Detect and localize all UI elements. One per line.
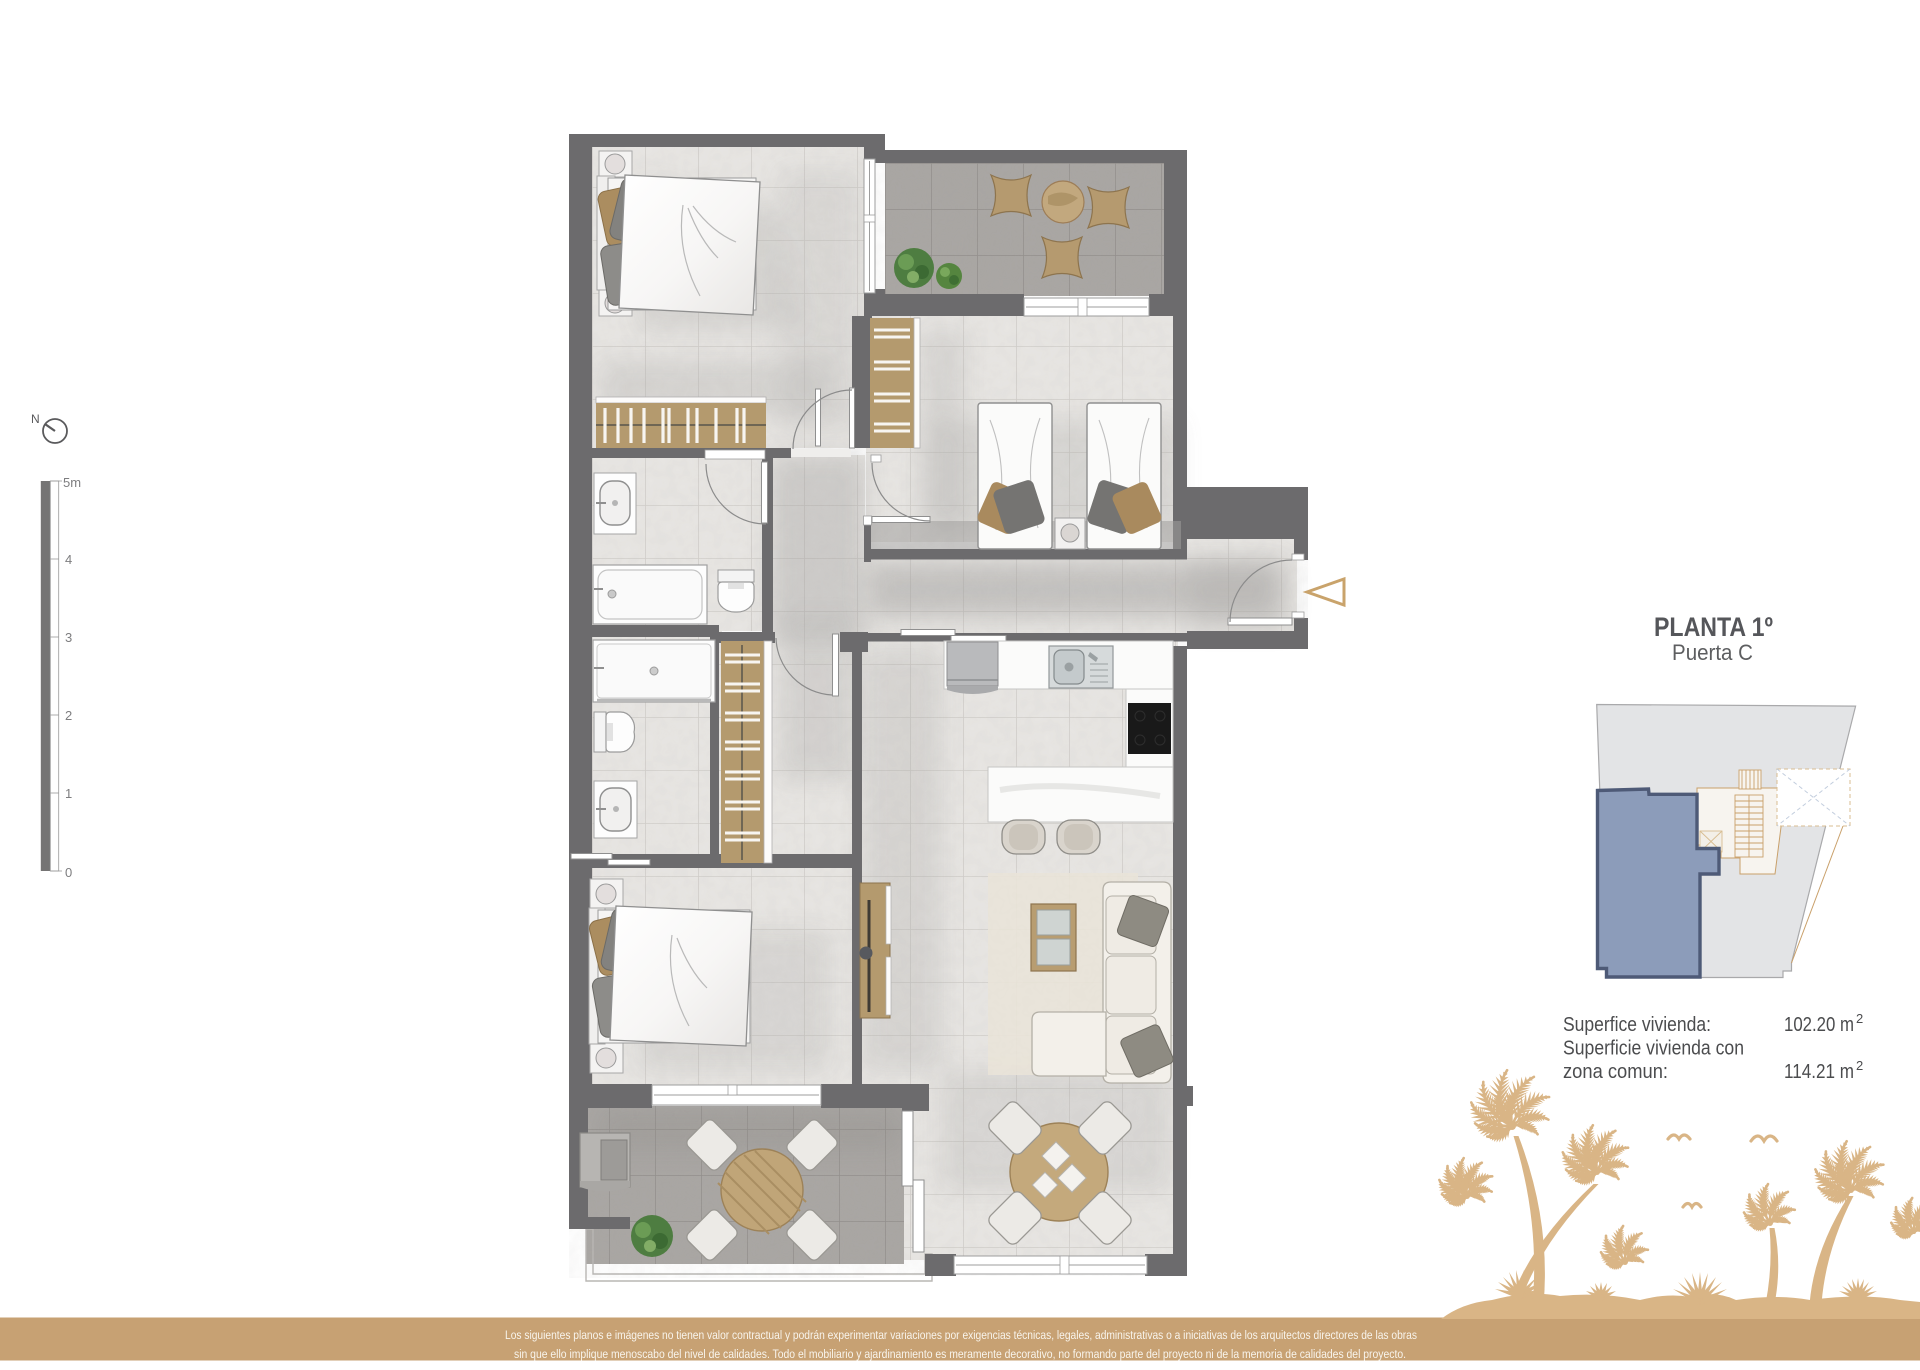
svg-text:Superficie vivienda con: Superficie vivienda con [1563,1037,1744,1060]
svg-text:2: 2 [65,708,72,723]
svg-text:2: 2 [1856,1011,1863,1026]
svg-text:N: N [31,412,40,426]
svg-text:102.20 m: 102.20 m [1784,1013,1854,1036]
svg-text:1: 1 [65,786,72,801]
svg-text:5m: 5m [63,475,81,490]
svg-text:PLANTA 1º: PLANTA 1º [1654,612,1773,642]
svg-text:0: 0 [65,865,72,880]
svg-text:sin que ello implique menoscab: sin que ello implique menoscabo del nive… [514,1347,1406,1361]
svg-text:Puerta C: Puerta C [1672,640,1753,665]
svg-text:2: 2 [1856,1058,1863,1073]
svg-text:Superfice vivienda:: Superfice vivienda: [1563,1013,1711,1036]
svg-text:4: 4 [65,552,72,567]
svg-text:zona comun:: zona comun: [1563,1060,1668,1083]
svg-text:Los siguientes planos e imágen: Los siguientes planos e imágenes no tien… [505,1328,1417,1342]
svg-text:3: 3 [65,630,72,645]
svg-text:114.21 m: 114.21 m [1784,1060,1854,1083]
